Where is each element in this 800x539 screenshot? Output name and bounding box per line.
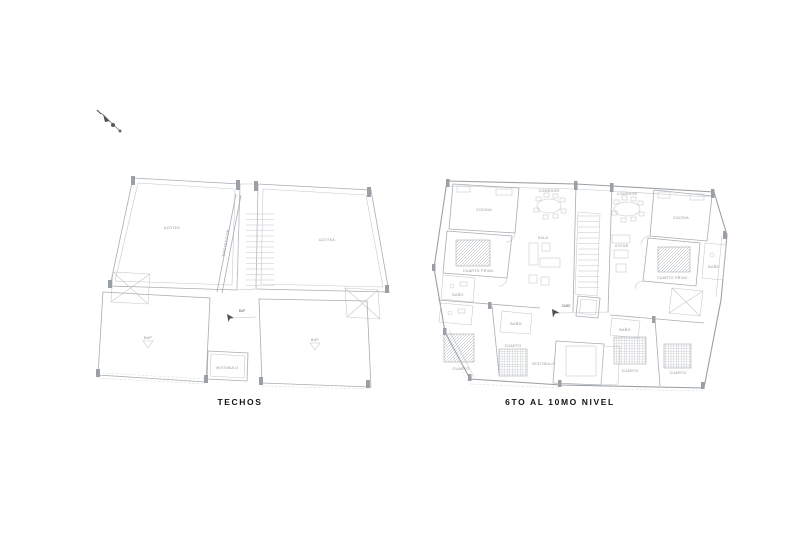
nivel-note-label: SUBE	[562, 304, 571, 308]
sofa-set-right	[612, 235, 630, 272]
drain-left-label: BAP	[144, 336, 152, 340]
bedroom-right-2-label: CUARTO	[670, 371, 687, 375]
hall-label: VESTIBULO	[532, 362, 555, 366]
right-plan-title: 6TO AL 10MO NIVEL	[505, 397, 615, 407]
master-left-label: CUARTO PRINC.	[463, 269, 495, 273]
dining-left-label: COMEDOR	[539, 189, 560, 193]
bath-right-1-label: BAÑO	[708, 264, 719, 269]
roof-left-label: AZOTEA	[164, 226, 180, 230]
floor-plan-drawing: PROYECCION BAP BAP VESTIBULO BAP AZOTEA …	[0, 0, 800, 539]
bath-left-2-label: BAÑO	[510, 321, 521, 326]
roof-right-label: AZOTEA	[319, 238, 335, 242]
left-plan-title: TECHOS	[217, 397, 262, 407]
living-right-label: ESTAR	[615, 244, 628, 248]
bedroom-right-1-label: CUARTO	[622, 369, 639, 373]
kitchen-left-label: COCINA	[476, 208, 492, 212]
kitchen-right-label: COCINA	[673, 216, 689, 220]
dining-right-label: COMEDOR	[617, 192, 638, 196]
techos-note-label: BAP	[239, 309, 245, 313]
plan-nivel-tipico: COCINA CUARTO PRINC. BAÑO COMEDOR SALA	[432, 179, 727, 391]
bedroom-left-1-label: CUARTO	[453, 367, 470, 371]
master-right-label: CUARTO PRINC.	[657, 276, 689, 280]
bedroom-left-2-label: CUARTO	[505, 344, 522, 348]
drawing-sheet: PROYECCION BAP BAP VESTIBULO BAP AZOTEA …	[0, 0, 800, 539]
living-left-label: SALA	[538, 236, 549, 240]
ramp-label: PROYECCION	[222, 229, 231, 257]
sofa-set-left	[529, 243, 560, 285]
drain-right-label: BAP	[311, 338, 319, 342]
north-arrow-icon	[97, 110, 122, 133]
bath-right-2-label: BAÑO	[619, 327, 630, 332]
bath-left-1-label: BAÑO	[452, 292, 463, 297]
plan-techos: PROYECCION BAP BAP VESTIBULO BAP AZOTEA …	[96, 176, 389, 389]
bulkhead-label: VESTIBULO	[216, 366, 239, 370]
dining-chairs-right	[612, 196, 644, 222]
